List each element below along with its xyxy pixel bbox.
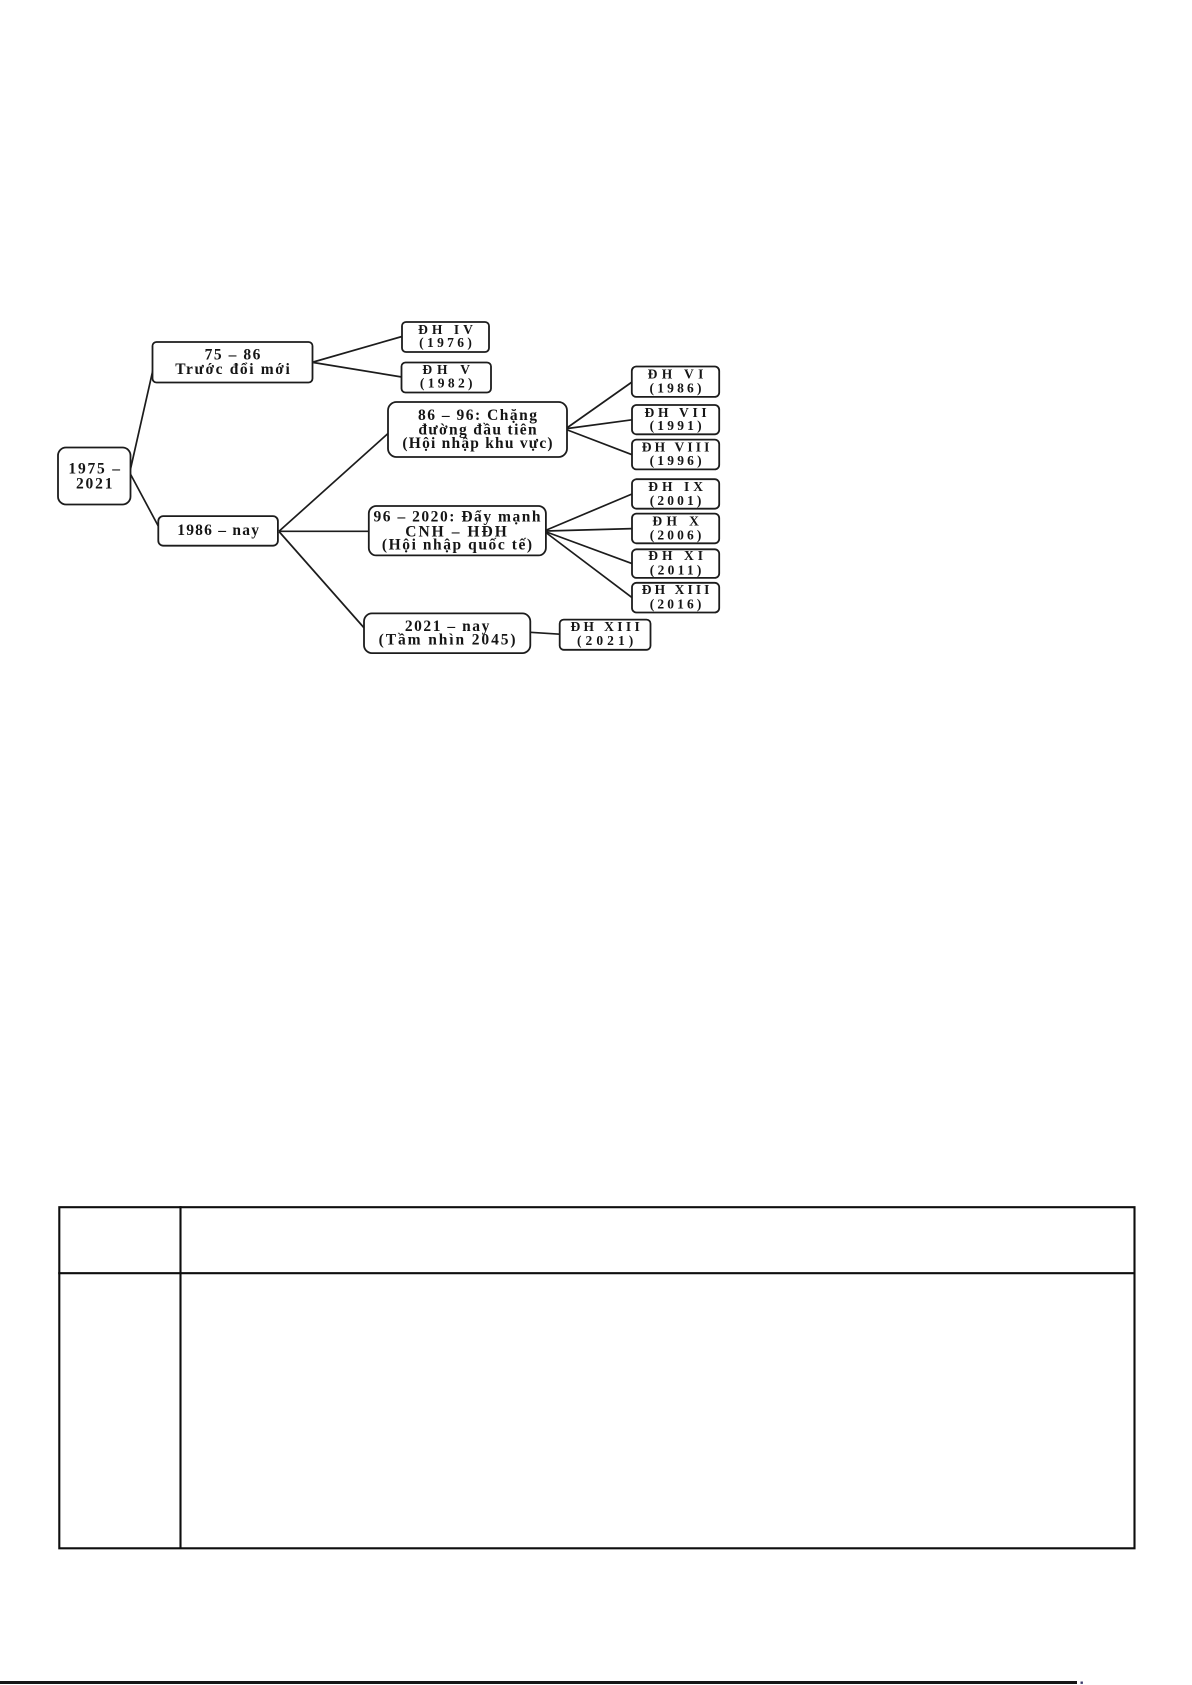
svg-text:(Hội nhập khu vực): (Hội nhập khu vực) bbox=[402, 435, 552, 452]
svg-text:1986 – nay: 1986 – nay bbox=[177, 522, 259, 539]
svg-text:(Hội nhập quốc tế): (Hội nhập quốc tế) bbox=[382, 537, 532, 554]
svg-text:(Tầm nhìn 2045): (Tầm nhìn 2045) bbox=[379, 632, 516, 649]
svg-text:ĐH X: ĐH X bbox=[652, 513, 699, 528]
svg-text:Trước đổi mới: Trước đổi mới bbox=[175, 361, 290, 378]
svg-text:ĐH IX: ĐH IX bbox=[648, 479, 703, 494]
svg-text:2021: 2021 bbox=[76, 476, 113, 493]
